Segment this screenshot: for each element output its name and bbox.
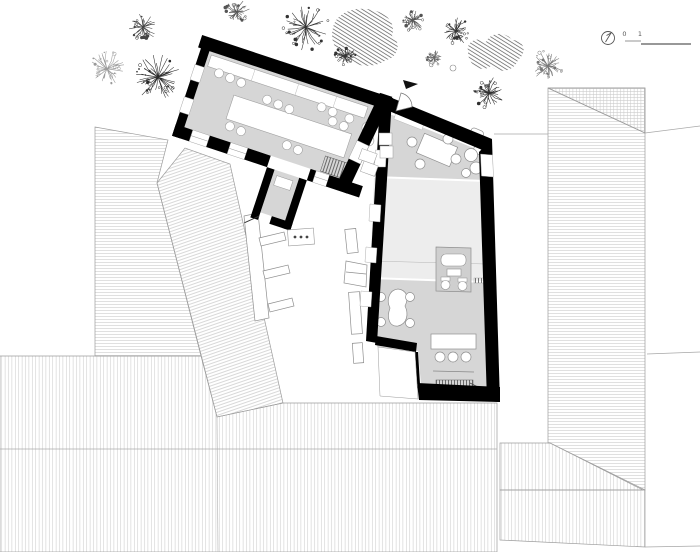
tree-foliage-dot	[402, 20, 404, 22]
tree-foliage-dot	[145, 74, 147, 76]
courtyard-bench	[259, 232, 286, 246]
west-window	[365, 247, 377, 263]
stove-burner	[461, 352, 471, 362]
tree-foliage-dot	[110, 82, 112, 84]
tree-foliage-dot	[342, 63, 344, 65]
tree-foliage-dot	[327, 20, 329, 22]
chair	[451, 154, 461, 164]
tree-foliage-dot	[437, 63, 439, 65]
tree-foliage-dot	[145, 33, 147, 35]
tree-foliage-dot	[225, 10, 228, 13]
tree-foliage-dot	[561, 69, 563, 71]
tree-symbol	[473, 78, 502, 109]
scale-label-0: 0	[622, 30, 626, 38]
sink	[447, 269, 461, 276]
scale-bar: 0 1	[622, 30, 691, 44]
planter-box	[345, 228, 358, 253]
tree-foliage-dot	[142, 35, 146, 39]
tree-foliage-dot	[104, 52, 105, 53]
tree-foliage-dot	[282, 27, 285, 30]
tree-foliage-dot	[337, 48, 340, 51]
tree-symbol	[402, 10, 423, 31]
pouf	[465, 149, 478, 162]
tree-foliage-dot	[464, 20, 466, 22]
tree-symbol	[425, 50, 441, 67]
east-window	[481, 154, 494, 177]
tree-foliage-dot	[449, 23, 451, 25]
doormat-dot	[306, 236, 309, 239]
tree-foliage-dot	[226, 5, 229, 8]
courtyard-bench	[263, 265, 290, 279]
scale-label-1: 1	[638, 30, 642, 38]
chair	[406, 293, 415, 302]
tree-foliage-dot	[479, 86, 482, 89]
tree-foliage-dot	[483, 106, 486, 109]
junction-cupboard	[380, 146, 393, 158]
tree-foliage-dot	[538, 51, 541, 54]
west-window	[360, 291, 372, 307]
tree-foliage-dot	[476, 92, 478, 94]
tree-foliage-dot	[133, 34, 135, 36]
tree-foliage-dot	[308, 7, 310, 9]
tree-foliage-dot	[139, 64, 142, 67]
tree-symbol	[535, 50, 562, 79]
tree-foliage-dot	[350, 55, 352, 57]
right-bottom-roof-plane	[500, 490, 645, 547]
tree-foliage-dot	[143, 81, 145, 83]
tree-foliage-dot	[138, 68, 140, 70]
stove-burner	[448, 352, 458, 362]
tree-foliage-dot	[451, 42, 454, 45]
tree-foliage-dot	[477, 102, 481, 106]
tree-foliage-dot	[134, 26, 136, 28]
tree-foliage-dot	[548, 56, 551, 59]
tree-foliage-dot	[494, 82, 497, 85]
tree-foliage-dot	[167, 85, 169, 87]
tree-foliage-dot	[237, 4, 240, 7]
tree-foliage-dot	[334, 52, 337, 55]
tree-foliage-dot	[146, 34, 149, 37]
tree-symbol	[224, 1, 250, 22]
boundary-line	[645, 126, 700, 133]
tree-foliage-dot	[426, 58, 429, 61]
planter-box	[352, 343, 363, 364]
tree-foliage-dot	[318, 42, 320, 44]
right-neighbor-roof	[548, 88, 645, 490]
tree-foliage-dot	[320, 40, 323, 43]
tree-foliage-dot	[106, 60, 108, 62]
tree-foliage-dot	[286, 32, 288, 34]
tree-foliage-dot	[295, 43, 298, 46]
stove-burner	[435, 352, 445, 362]
tree-symbol	[129, 14, 155, 40]
shower-tray	[441, 254, 466, 266]
tree-foliage-dot	[480, 81, 483, 84]
tree-foliage-dot	[466, 37, 468, 39]
tree-foliage-dot	[553, 66, 556, 69]
tree-symbol	[445, 18, 469, 45]
tree-foliage-dot	[94, 63, 97, 66]
tree-foliage-dot	[546, 73, 548, 75]
tree-foliage-dot	[292, 42, 294, 44]
tree-foliage-dot	[114, 72, 116, 74]
chair	[407, 137, 417, 147]
tree-foliage-dot	[294, 21, 295, 22]
tree-foliage-dot	[136, 20, 138, 22]
tree-foliage-dot	[543, 50, 545, 52]
tree-foliage-dot	[490, 81, 491, 82]
tree-foliage-dot	[310, 48, 313, 51]
tree-foliage-dot	[97, 75, 99, 77]
sapling-circle	[450, 65, 456, 71]
tree-foliage-dot	[463, 33, 465, 35]
tree-foliage-dot	[479, 90, 481, 92]
right-wing	[358, 80, 500, 402]
tree-foliage-dot	[113, 52, 116, 55]
floor-plan-canvas: 0 1	[0, 0, 700, 552]
toilet	[458, 282, 467, 291]
shrub-hatch	[468, 34, 524, 71]
tree-foliage-dot	[406, 21, 408, 23]
kitchen-counter	[431, 334, 476, 349]
tree-foliage-dot	[92, 58, 94, 60]
tree-foliage-dot	[536, 55, 537, 56]
tree-foliage-dot	[419, 28, 422, 31]
tree-foliage-dot	[354, 54, 356, 56]
boundary-line	[645, 546, 700, 547]
tree-foliage-dot	[241, 19, 244, 22]
junction-cupboard	[379, 133, 392, 145]
tree-foliage-dot	[335, 55, 338, 58]
tree-foliage-dot	[537, 61, 540, 64]
tree-foliage-dot	[446, 24, 448, 26]
tree-symbol	[136, 55, 179, 98]
tree-foliage-dot	[294, 38, 298, 42]
tree-foliage-dot	[141, 16, 143, 18]
doormat-table	[287, 228, 314, 246]
tree-foliage-dot	[169, 60, 172, 63]
tree-foliage-dot	[405, 19, 407, 21]
tree-foliage-dot	[338, 60, 340, 62]
chair	[406, 319, 415, 328]
tree-foliage-dot	[404, 24, 408, 28]
tree-foliage-dot	[148, 88, 150, 90]
tree-foliage-dot	[146, 81, 149, 84]
tree-foliage-dot	[467, 33, 469, 35]
tree-foliage-dot	[146, 89, 148, 91]
doormat-dot	[300, 236, 303, 239]
shrub-layer	[332, 9, 524, 71]
tree-foliage-dot	[118, 67, 121, 70]
site-plan-page: 0 1	[0, 0, 700, 552]
courtyard-bench	[268, 298, 294, 312]
tree-foliage-dot	[410, 10, 413, 13]
chair	[415, 159, 425, 169]
tree-foliage-dot	[407, 29, 410, 32]
tree-foliage-dot	[473, 90, 474, 91]
tree-foliage-dot	[542, 59, 545, 62]
toilet	[441, 281, 450, 290]
tree-foliage-dot	[430, 63, 434, 67]
freeform-desk	[388, 289, 407, 326]
tree-foliage-dot	[288, 30, 291, 33]
pouf	[462, 169, 471, 178]
boundary-line	[647, 352, 700, 354]
tree-foliage-dot	[450, 36, 454, 40]
tree-foliage-dot	[286, 15, 289, 18]
west-window	[369, 204, 381, 222]
doormat-dot	[294, 236, 297, 239]
tree-foliage-dot	[421, 19, 423, 21]
notch-terrace	[378, 347, 418, 399]
tree-foliage-dot	[148, 70, 150, 72]
tree-symbol	[282, 7, 329, 51]
tree-foliage-dot	[345, 47, 348, 50]
tree-foliage-dot	[147, 92, 149, 94]
entrance-arrow-icon	[403, 80, 418, 89]
tree-foliage-dot	[158, 87, 160, 89]
tree-foliage-dot	[484, 102, 486, 104]
north-indicator-icon	[602, 32, 615, 45]
tree-foliage-dot	[419, 14, 422, 17]
tree-symbol	[92, 51, 124, 84]
tree-foliage-dot	[136, 71, 138, 73]
